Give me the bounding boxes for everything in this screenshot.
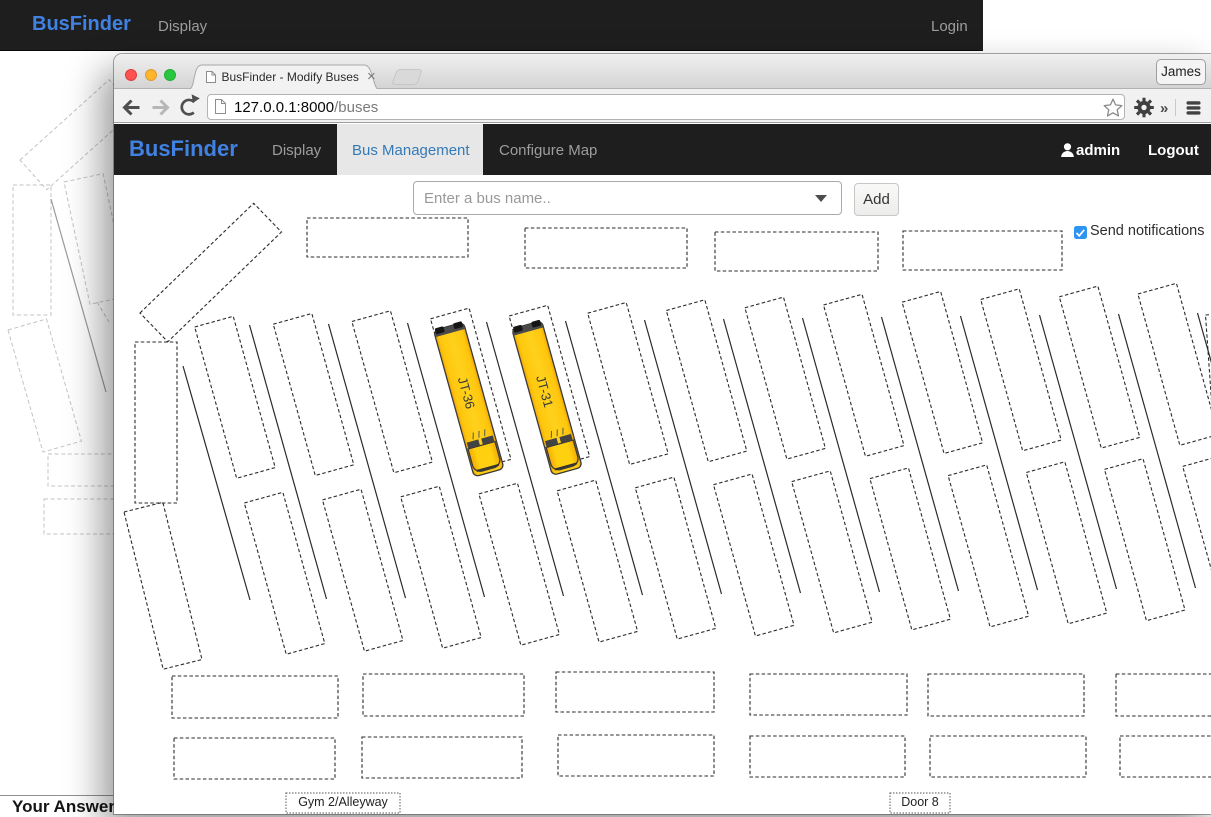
svg-text:Gym 2/Alleyway: Gym 2/Alleyway xyxy=(298,795,388,809)
svg-text:Door 8: Door 8 xyxy=(901,795,939,809)
svg-text:»: » xyxy=(1160,100,1168,117)
